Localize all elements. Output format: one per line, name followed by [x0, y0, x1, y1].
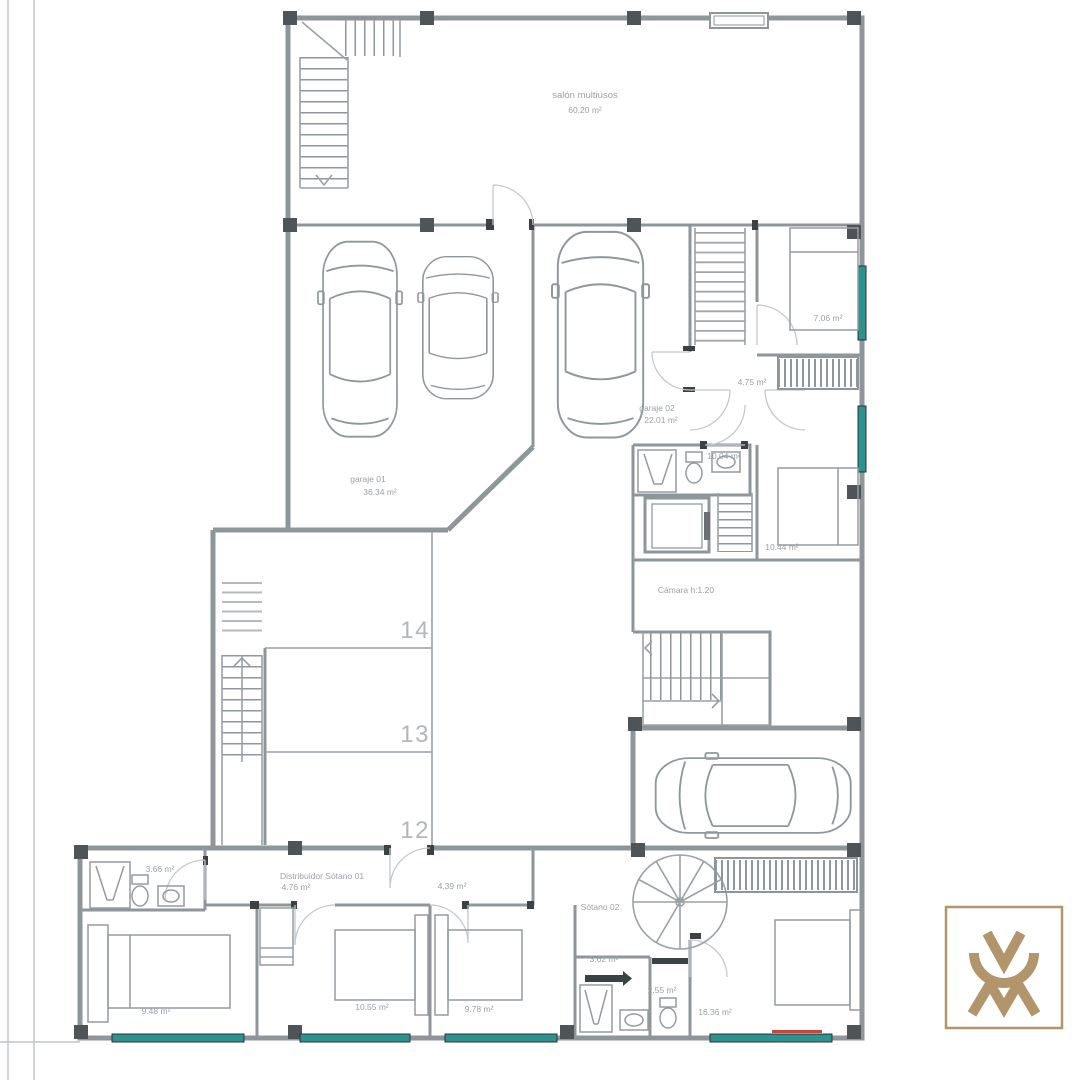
car-icon-garage2 — [552, 232, 649, 438]
room-area-room-right: 10.44 m² — [765, 542, 799, 552]
room-area-bedroom-mid1: 10.55 m² — [355, 1002, 389, 1012]
shower-bottom-mid — [580, 985, 612, 1032]
roof-vent — [710, 13, 768, 28]
room-area-garaje1: 36.34 m² — [363, 487, 397, 497]
bed-bottom-mid-2 — [435, 915, 522, 1015]
room-area-bedroom-right: 16.36 m² — [698, 1007, 732, 1017]
wardrobe-bottom-right — [715, 858, 857, 892]
window-bottom-1 — [112, 1034, 244, 1042]
doors — [165, 185, 805, 977]
brand-logo — [946, 907, 1062, 1028]
window-bottom-3 — [445, 1034, 557, 1042]
stair-top-left — [300, 20, 400, 188]
room-area-bedroom-left: 9.48 m² — [142, 1006, 171, 1016]
parking-number-13: 13 — [400, 721, 430, 748]
room-label-sotano2: Sótano 02 — [581, 902, 620, 912]
elevator — [645, 498, 710, 552]
room-area-pasillo: 4.39 m² — [438, 881, 467, 891]
spiral-staircase — [633, 855, 727, 949]
room-label-salon: salón multiusos — [552, 90, 618, 101]
structural-columns — [74, 11, 861, 1039]
room-area-hall-tr: 4.75 m² — [738, 377, 767, 387]
floor-plan-drawing: salón multiusos 60.20 m² garaje 01 36.34… — [0, 0, 1080, 1080]
window-bottom-4 — [710, 1034, 832, 1042]
car-icon-garage1-b — [418, 257, 498, 399]
room-area-salon: 60.20 m² — [568, 105, 602, 115]
room-area-bedroom-tr: 7.06 m² — [814, 313, 843, 323]
sink-bottom-left — [158, 886, 184, 906]
window-bottom-2 — [300, 1034, 410, 1042]
room-area-garaje2: 22.01 m² — [644, 415, 678, 425]
window-right-2 — [858, 406, 866, 472]
floor-plan-page: salón multiusos 60.20 m² garaje 01 36.34… — [0, 0, 1080, 1080]
bed-bottom-mid-1 — [335, 915, 428, 1015]
room-label-garaje1: garaje 01 — [350, 474, 386, 484]
shower-top-right — [638, 450, 676, 492]
room-area-bedroom-mid2: 9.78 m² — [465, 1004, 494, 1014]
wardrobe-top-right — [778, 357, 858, 389]
car-icon-garage1-a — [318, 242, 402, 437]
stair-arrow-down — [316, 175, 332, 185]
bed-room-right — [778, 468, 858, 545]
room-area-bath-mid: 3.62 m² — [590, 954, 619, 964]
toilet-bottom-left — [132, 875, 148, 906]
room-label-distribuidor: Distribuidor Sótano 01 — [280, 871, 364, 881]
site-boundary-lines — [0, 0, 80, 1080]
room-area-wc: 2.55 m² — [648, 985, 677, 995]
room-area-bath-left: 3.66 m² — [146, 864, 175, 874]
stair-top-right — [695, 228, 745, 345]
shower-bottom-left — [90, 862, 130, 908]
room-label-garaje2: garaje 02 — [639, 403, 675, 413]
stair-central-u — [643, 632, 770, 725]
room-label-camara: Cámara h:1.20 — [658, 585, 714, 595]
room-area-bath-tr: 10.04 m² — [707, 451, 741, 461]
parking-bay-lines — [265, 532, 432, 845]
sink-bottom-mid — [620, 1010, 648, 1030]
toilet-top-right — [686, 452, 702, 483]
room-area-distribuidor: 4.76 m² — [282, 882, 311, 892]
bed-bottom-right — [775, 910, 862, 1010]
parking-number-14: 14 — [400, 617, 430, 644]
logo-monogram-icon — [972, 933, 1036, 1014]
stair-left-lower — [222, 655, 262, 845]
toilet-bottom-right-wc — [660, 998, 676, 1028]
window-right-1 — [858, 266, 866, 340]
stair-beside-elevator — [718, 493, 752, 552]
closet-niche — [260, 908, 293, 965]
red-marker — [772, 1030, 822, 1033]
interior-walls — [80, 225, 862, 1038]
car-icon-garage3 — [656, 753, 851, 838]
parking-number-12: 12 — [400, 817, 430, 844]
